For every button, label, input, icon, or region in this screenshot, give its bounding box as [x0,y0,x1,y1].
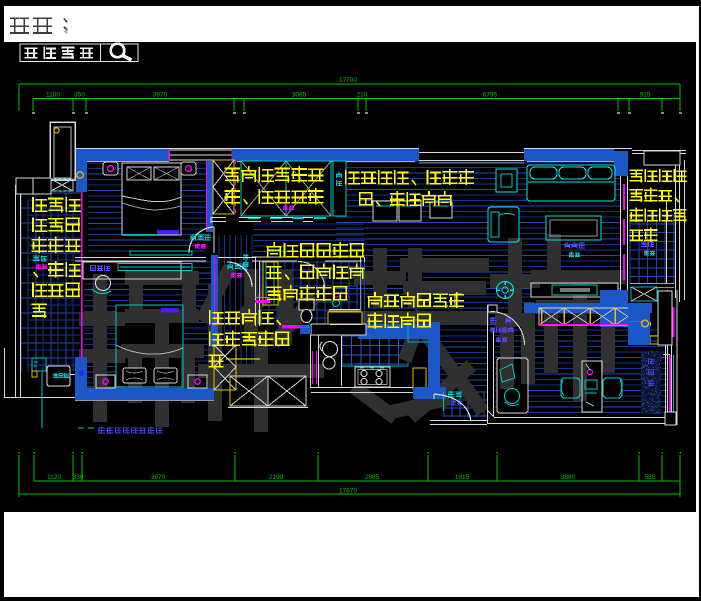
svg-text:3970: 3970 [153,92,168,99]
svg-text:17700: 17700 [339,77,357,84]
svg-text:6795: 6795 [483,92,498,99]
svg-text:350: 350 [74,92,85,99]
svg-text:585: 585 [645,474,656,481]
svg-text:1815: 1815 [455,474,470,481]
svg-text:17870: 17870 [339,488,357,495]
svg-text:2190: 2190 [269,474,284,481]
svg-text:330: 330 [73,474,84,481]
svg-text:1120: 1120 [47,474,61,481]
svg-text:3085: 3085 [292,92,307,99]
svg-text:3880: 3880 [561,474,576,481]
svg-text:1100: 1100 [46,92,60,99]
svg-text:3970: 3970 [151,474,166,481]
svg-text:2985: 2985 [365,474,380,481]
svg-text:210: 210 [357,92,368,99]
svg-text:915: 915 [640,92,651,99]
